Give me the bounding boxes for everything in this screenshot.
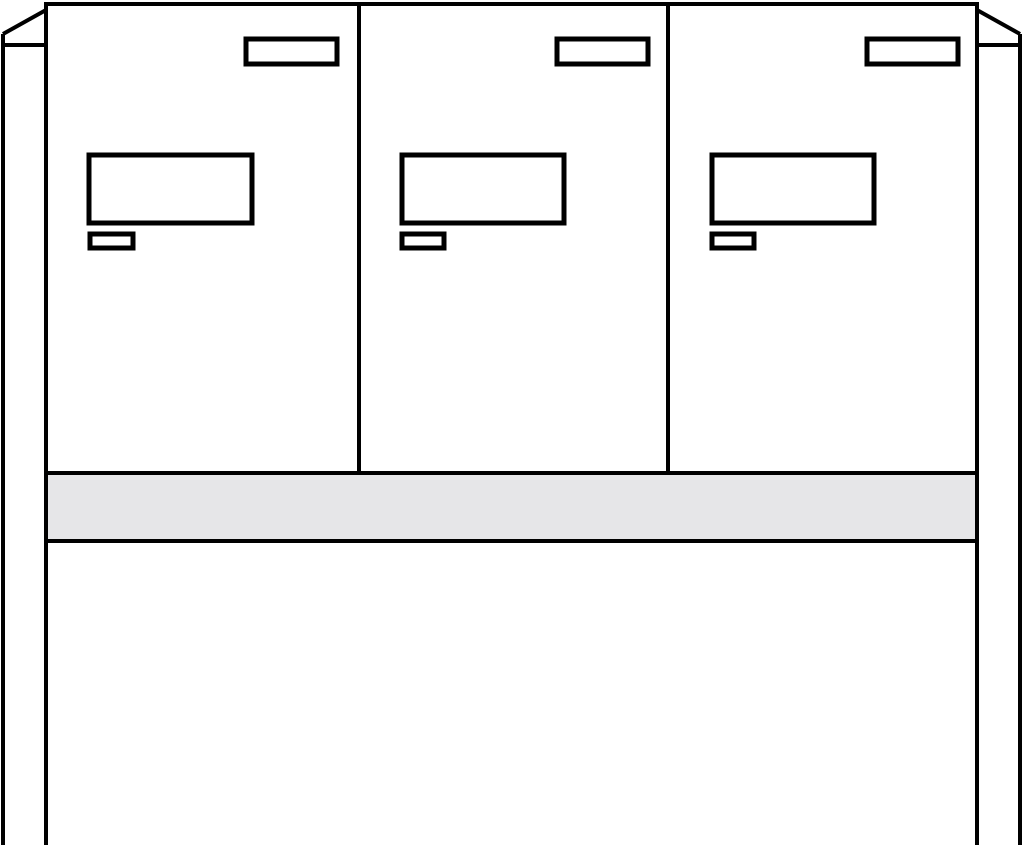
name-plate [246,39,337,64]
name-plate [557,39,648,64]
letter-flap [712,155,874,223]
left-post-cap-bevel [3,10,46,34]
right-stand-post [977,10,1020,845]
plinth-rail [46,473,977,541]
letter-flap [402,155,564,223]
letter-flap [89,155,252,223]
name-plate [867,39,958,64]
lock [402,234,444,248]
lock [712,234,754,248]
diagram-canvas: Front-view line drawing of a free-standi… [0,0,1024,845]
mailbox-unit-diagram: Front-view line drawing of a free-standi… [0,0,1024,845]
cabinet-outline [46,4,977,473]
lock [90,234,133,248]
right-post-cap-bevel [977,10,1020,34]
left-stand-post [3,10,46,845]
